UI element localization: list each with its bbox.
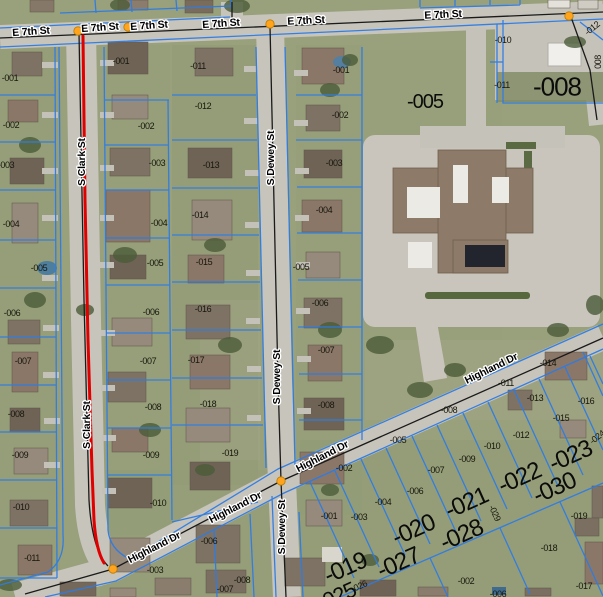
parcel-label: -009 (12, 450, 29, 460)
parcel-label: -006 (201, 536, 218, 546)
parcel-label: -016 (578, 396, 595, 406)
parcel-label: -005 (293, 262, 310, 272)
parcel-label: -006 (4, 308, 21, 318)
dark-canopy (465, 245, 505, 267)
parcel-label: -017 (188, 355, 205, 365)
parcel-label: -005 (31, 263, 48, 273)
parcel-label: -019 (222, 448, 239, 458)
intersection-node[interactable] (277, 477, 285, 485)
parcel-label: -002 (3, 120, 20, 130)
parcel-label: -010 (150, 498, 167, 508)
parcel-label: -005 (147, 258, 164, 268)
street-label: S Dewey St (271, 349, 283, 404)
parcel-label: -005 (390, 435, 407, 445)
parcel-label: -014 (192, 210, 209, 220)
parcel-label: -008 (318, 400, 335, 410)
parcel-label: -004 (316, 205, 333, 215)
street-label: S Dewey St (276, 499, 288, 554)
parcel-label: -001 (321, 511, 338, 521)
aerial-map[interactable]: -001-002-003-004-005-006-007-008-009-010… (0, 0, 603, 597)
parcel-label: -018 (200, 399, 217, 409)
parcel-label: -015 (196, 257, 213, 267)
parcel-label: -016 (195, 304, 212, 314)
parcel-label: -003 (0, 160, 15, 170)
parcel-label: 008 (593, 55, 603, 69)
parcel-label: -003 (326, 158, 343, 168)
parcel-label: -007 (318, 345, 335, 355)
parcel-label: -011 (24, 553, 40, 563)
parcel-label: -019 (571, 511, 588, 521)
parcel-label: -014 (540, 358, 557, 368)
parcel-label: -015 (553, 413, 570, 423)
parcel-label: -002 (332, 110, 349, 120)
parcel-label: -007 (217, 584, 234, 594)
parcel-label: -005 (407, 91, 444, 113)
parcel-label: -006 (143, 307, 160, 317)
parcel-label: -002 (138, 121, 155, 131)
parcel-label: -011 (494, 80, 510, 90)
street-label: E 7th St (287, 14, 326, 28)
parcel-label: -009 (459, 454, 476, 464)
parcel-label: -001 (2, 73, 19, 83)
parcel-label: -003 (147, 565, 164, 575)
parcel-label: -013 (527, 393, 544, 403)
parcel-label: -004 (3, 219, 20, 229)
parcel-label: -018 (541, 543, 558, 553)
parcel-label: -001 (333, 65, 350, 75)
parcel-label: -011 (498, 378, 514, 388)
intersection-node[interactable] (565, 12, 573, 20)
street-label: S Clark St (76, 137, 88, 185)
parcel-label: -008 (441, 405, 458, 415)
parcel-label: -008 (145, 402, 162, 412)
parcel-label: -004 (151, 218, 168, 228)
parcel-label: -010 (13, 502, 30, 512)
parcel-label: -003 (351, 512, 368, 522)
parcel-label: -006 (312, 298, 329, 308)
parcel-label: -017 (576, 581, 593, 591)
parcel-label: -012 (513, 430, 530, 440)
street-label: S Dewey St (265, 130, 277, 185)
parcel-label: -001 (113, 56, 130, 66)
parcel-label: -011 (190, 61, 206, 71)
street-label: S Clark St (81, 400, 93, 448)
parcel-label: -007 (140, 356, 157, 366)
parcel-label: -004 (375, 497, 392, 507)
map-viewport[interactable]: -001-002-003-004-005-006-007-008-009-010… (0, 0, 603, 597)
parcel-label: -002 (458, 576, 475, 586)
parcel-label: -009 (143, 450, 160, 460)
parcel-label: -002 (336, 463, 353, 473)
street-label: E 7th St (424, 8, 463, 22)
intersection-node[interactable] (109, 565, 117, 573)
parcel-label: -008 (533, 71, 582, 101)
parcel-label: -010 (484, 441, 501, 451)
parcel-label: -013 (203, 160, 220, 170)
parcel-label: -010 (495, 35, 512, 45)
parcel-label: -007 (15, 356, 32, 366)
parcel-label: -003 (149, 158, 166, 168)
parcel-label: -006 (407, 486, 424, 496)
parcel-label: -012 (195, 101, 212, 111)
parcel-label: -007 (428, 465, 445, 475)
parcel-label: -008 (234, 575, 251, 585)
parcel-label: -006 (490, 589, 507, 597)
parcel-label: -008 (8, 409, 25, 419)
intersection-node[interactable] (266, 20, 274, 28)
